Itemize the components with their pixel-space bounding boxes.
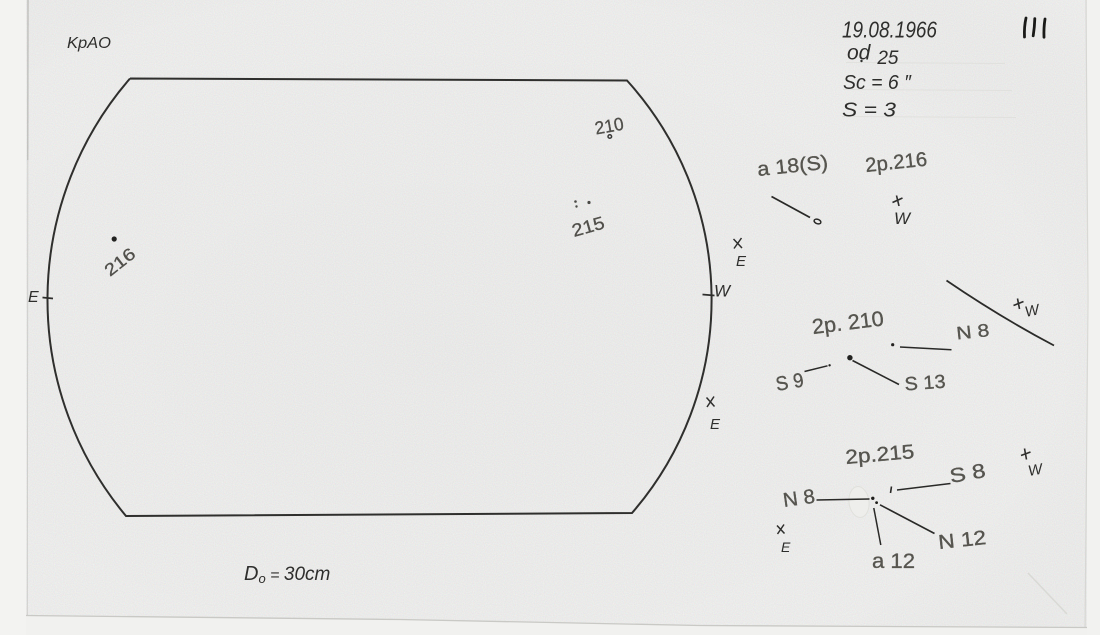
svg-text:19.08.1966: 19.08.1966 bbox=[842, 17, 937, 43]
svg-text:S = 3: S = 3 bbox=[842, 100, 896, 122]
svg-text:E: E bbox=[781, 539, 791, 555]
svg-text:W: W bbox=[714, 282, 732, 301]
svg-text:N 8: N 8 bbox=[955, 320, 990, 343]
svg-text:S 13: S 13 bbox=[904, 372, 946, 396]
svg-text:W: W bbox=[894, 209, 912, 228]
svg-text:E: E bbox=[28, 289, 39, 306]
svg-text:KpAO: KpAO bbox=[67, 35, 111, 52]
svg-text:a 12: a 12 bbox=[872, 550, 915, 573]
svg-text:Sc = 6 ″: Sc = 6 ″ bbox=[843, 72, 912, 94]
svg-text:E: E bbox=[736, 253, 747, 270]
svg-text:Do = 30cm: Do = 30cm bbox=[244, 563, 330, 586]
svg-text:E: E bbox=[710, 416, 721, 433]
svg-text:N 8: N 8 bbox=[782, 486, 817, 512]
